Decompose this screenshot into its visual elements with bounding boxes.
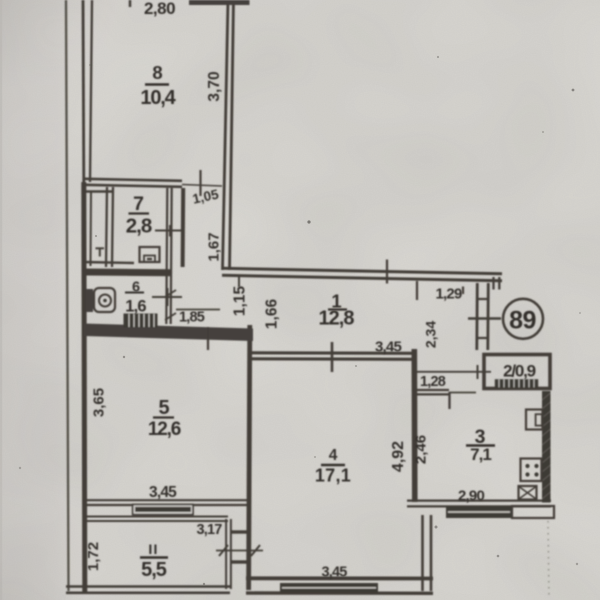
svg-text:1,6: 1,6 — [125, 298, 146, 316]
svg-text:1,29: 1,29 — [436, 286, 462, 303]
svg-text:2,8: 2,8 — [126, 215, 152, 238]
svg-text:89: 89 — [509, 307, 536, 335]
svg-text:2/0,9: 2/0,9 — [503, 362, 536, 381]
svg-text:8: 8 — [152, 62, 162, 83]
svg-text:1,28: 1,28 — [420, 374, 446, 390]
svg-text:3,45: 3,45 — [375, 339, 401, 356]
svg-text:3,45: 3,45 — [321, 565, 347, 581]
svg-text:3,65: 3,65 — [91, 388, 108, 417]
svg-text:1,15: 1,15 — [232, 286, 249, 317]
svg-text:7: 7 — [133, 193, 144, 215]
svg-text:5,5: 5,5 — [141, 559, 167, 581]
svg-text:II: II — [148, 541, 158, 557]
svg-text:2,80: 2,80 — [144, 0, 175, 18]
svg-text:2,90: 2,90 — [458, 488, 484, 505]
svg-text:4,92: 4,92 — [390, 441, 407, 472]
svg-text:7,1: 7,1 — [470, 445, 491, 464]
svg-text:3,17: 3,17 — [196, 522, 222, 538]
svg-text:2,34: 2,34 — [423, 321, 439, 348]
svg-text:3,45: 3,45 — [149, 484, 177, 501]
svg-text:12,6: 12,6 — [148, 419, 181, 440]
svg-text:5: 5 — [158, 397, 169, 419]
svg-text:12,8: 12,8 — [319, 308, 355, 330]
svg-text:4: 4 — [329, 447, 338, 464]
svg-text:1,66: 1,66 — [264, 299, 281, 330]
svg-text:1,67: 1,67 — [206, 232, 223, 261]
svg-text:10,4: 10,4 — [140, 87, 176, 109]
svg-text:1,72: 1,72 — [85, 542, 102, 571]
svg-text:17,1: 17,1 — [315, 466, 351, 486]
svg-text:3,70: 3,70 — [206, 71, 223, 101]
svg-text:2,46: 2,46 — [413, 435, 430, 464]
svg-text:1,85: 1,85 — [179, 310, 205, 326]
